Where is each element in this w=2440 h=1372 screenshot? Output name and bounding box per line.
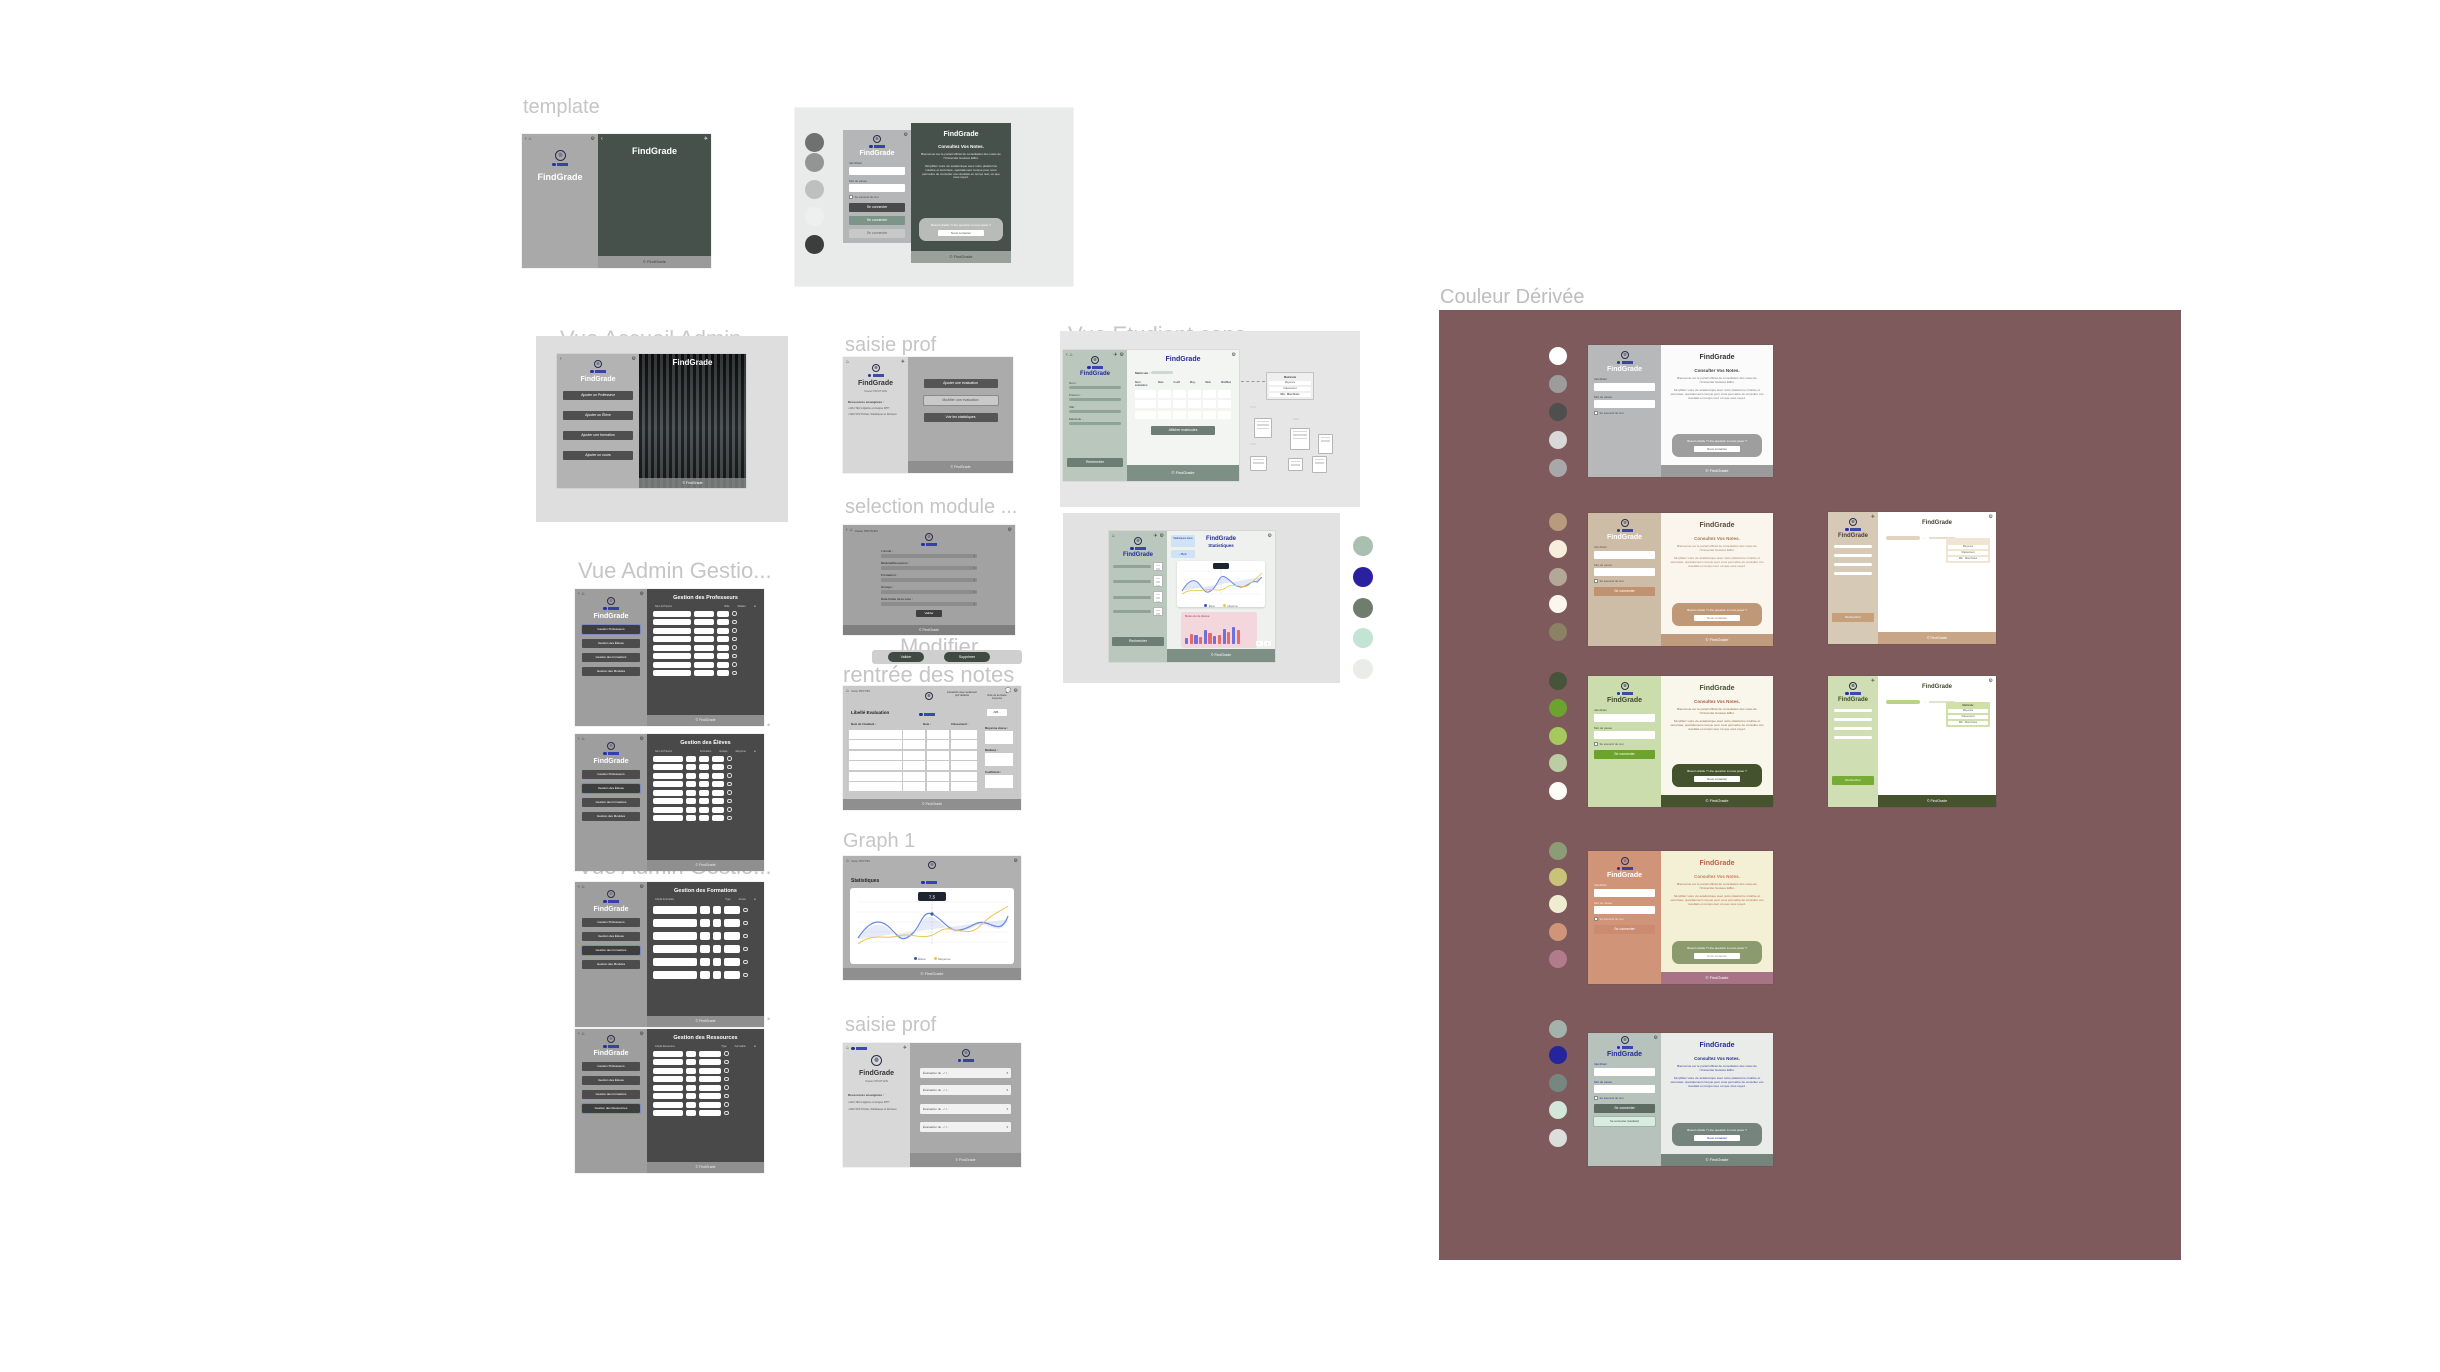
home-icon[interactable]: ⌂ — [846, 859, 849, 864]
matricule-input[interactable] — [1151, 371, 1173, 374]
home-icon[interactable]: ⌂ — [846, 360, 849, 365]
info-icon[interactable] — [727, 765, 732, 770]
share-icon[interactable]: ✈ — [1113, 353, 1117, 358]
color-swatch[interactable] — [1353, 628, 1373, 648]
color-swatch[interactable] — [805, 180, 824, 199]
valider-pill[interactable]: Valider — [888, 652, 924, 662]
info-icon[interactable] — [727, 756, 732, 761]
field-input[interactable] — [1069, 410, 1121, 413]
home-icon[interactable]: ⌂ — [582, 1032, 585, 1037]
identifiant-input[interactable] — [1594, 714, 1655, 722]
frame-etudiant-stat[interactable]: ⌂✈⚙ FindGrade Rechercher Statistiques él… — [1109, 531, 1275, 662]
info-icon[interactable] — [743, 921, 748, 926]
col-header: Année — [739, 898, 746, 901]
info-icon[interactable] — [743, 934, 748, 939]
identifiant-input[interactable] — [1594, 1068, 1655, 1076]
share-icon[interactable]: ✈ — [1871, 679, 1875, 684]
derivee-frame-beige-search[interactable]: ✈ FindGrade Rechercher ⚙ FindGrade → Moy… — [1828, 512, 1996, 644]
menu-gestion-professeurs[interactable]: Gestion Professeurs — [582, 918, 640, 927]
table-row[interactable] — [849, 740, 977, 749]
info-icon[interactable] — [724, 1077, 729, 1082]
add-icon[interactable]: ⊕ — [754, 750, 756, 753]
table-row[interactable] — [849, 761, 977, 770]
side-input[interactable] — [985, 775, 1013, 788]
home-icon[interactable]: ⌂ — [850, 528, 853, 533]
design-canvas: { "app": { "name": "FindGrade", "copyrig… — [0, 0, 2440, 1372]
identifiant-input[interactable] — [1594, 383, 1655, 391]
back-icon[interactable]: ‹ — [525, 137, 527, 142]
home-icon[interactable]: ⌂ — [1070, 353, 1073, 358]
back-chip[interactable]: ‹ Bob — [1171, 550, 1195, 558]
add-formation-button[interactable]: Ajouter une formation — [563, 431, 633, 440]
info-icon[interactable] — [727, 799, 732, 804]
frame-accueil-admin[interactable]: ‹⚙ FindGrade Ajouter un Professeur Ajout… — [557, 354, 746, 488]
frame-admin-eleves[interactable]: ‹⌂⚙ FindGrade Gestion Professeurs Gestio… — [575, 734, 764, 871]
table-row[interactable] — [653, 971, 758, 979]
canvas-label-saisie-prof-2[interactable]: saisie prof — [845, 1014, 936, 1037]
side-input[interactable] — [985, 753, 1013, 766]
back-icon[interactable]: ‹ — [560, 357, 562, 362]
color-swatch[interactable] — [1549, 895, 1567, 913]
login-button[interactable]: Se connecter — [1594, 925, 1655, 934]
gear-icon[interactable]: ⚙ — [1989, 679, 1993, 684]
color-swatch[interactable] — [1353, 567, 1373, 587]
back-icon[interactable]: ‹ — [601, 137, 603, 142]
info-icon[interactable] — [732, 671, 737, 676]
info-icon[interactable] — [724, 1094, 729, 1099]
color-swatch[interactable] — [805, 235, 824, 254]
color-swatch[interactable] — [1549, 727, 1567, 745]
view-stats-button[interactable]: Voir les statistiques — [924, 413, 998, 422]
info-row: Moyenne — [1269, 381, 1311, 386]
results-table — [1127, 390, 1239, 419]
share-icon[interactable]: ✈ — [1871, 515, 1875, 520]
menu-gestion-eleves[interactable]: Gestion des Élèves — [582, 784, 640, 793]
evaluation-select[interactable]: Évaluation du ../../..▾ — [920, 1122, 1011, 1132]
home-icon[interactable]: ⌂ — [1112, 534, 1115, 539]
login-button-dark[interactable]: Se connecter — [849, 203, 905, 212]
menu-gestion-formations[interactable]: Gestion des formations — [582, 653, 640, 662]
gear-icon[interactable]: ⚙ — [1014, 689, 1018, 694]
annotation: Note de la classe moyenne — [983, 694, 1011, 700]
color-swatch[interactable] — [1549, 568, 1567, 586]
frame-template-base[interactable]: ‹⌂⚙ FindGrade ‹✈ FindGrade © FindGrade — [522, 134, 711, 268]
login-button-light[interactable]: Se connecter — [849, 229, 905, 238]
color-swatch[interactable] — [1549, 1074, 1567, 1092]
color-swatch[interactable] — [1549, 950, 1567, 968]
canvas-label-saisie-prof-1[interactable]: saisie prof — [845, 334, 936, 357]
identifiant-label: Identifiant — [1594, 377, 1655, 381]
table-row[interactable] — [653, 670, 758, 676]
edit-evaluation-button[interactable]: Modifier une évaluation — [924, 396, 998, 405]
color-swatch[interactable] — [1549, 1129, 1567, 1147]
gear-icon[interactable]: ⚙ — [1014, 859, 1018, 864]
info-icon[interactable] — [727, 790, 732, 795]
search-button[interactable]: Rechercher — [1067, 458, 1123, 467]
share-icon[interactable]: ✈ — [704, 137, 708, 142]
frame-saisie-prof-actions[interactable]: ⌂✈ FindGrade Xavier PROTHIN Ressources e… — [843, 357, 1013, 473]
class-badge[interactable]: A|B... — [987, 709, 1007, 716]
info-icon[interactable] — [724, 1085, 729, 1090]
table-row[interactable] — [653, 1076, 758, 1082]
color-swatch[interactable] — [1549, 672, 1567, 690]
table-row[interactable] — [653, 807, 758, 813]
remember-checkbox[interactable]: Se souvenir de moi — [1594, 579, 1655, 583]
gear-icon[interactable]: ⚙ — [640, 885, 644, 890]
remember-checkbox[interactable]: Se souvenir de moi — [1594, 742, 1655, 746]
home-icon[interactable]: ⌂ — [846, 1046, 849, 1051]
frame-saisie-prof-select[interactable]: ⌂✈ FindGrade Xavier PROTHIN Ressources e… — [843, 1043, 1021, 1167]
canvas-label-admin-gestion-1[interactable]: Vue Admin Gestio... — [578, 558, 772, 584]
identifiant-input[interactable] — [1594, 889, 1655, 897]
color-swatch[interactable] — [1353, 536, 1373, 556]
next-page-button[interactable]: › — [1264, 641, 1271, 646]
info-icon[interactable] — [743, 947, 748, 952]
color-swatch[interactable] — [1549, 754, 1567, 772]
table-row[interactable] — [653, 611, 758, 617]
table-row[interactable] — [653, 781, 758, 787]
color-swatch[interactable] — [805, 133, 824, 152]
derivee-frame-gray[interactable]: FindGrade Identifiant Mot de passe Se so… — [1588, 345, 1773, 477]
search-button[interactable]: Rechercher — [1832, 776, 1874, 785]
menu-gestion-eleves[interactable]: Gestion des Élèves — [582, 932, 640, 941]
info-icon[interactable] — [732, 620, 737, 625]
info-icon[interactable] — [724, 1111, 729, 1116]
evaluation-select[interactable]: Évaluation du ../../..▾ — [920, 1104, 1011, 1114]
formations-rows — [647, 906, 764, 979]
gear-icon[interactable]: ⚙ — [1008, 528, 1012, 533]
color-swatch[interactable] — [1549, 375, 1567, 393]
add-evaluation-button[interactable]: Ajouter une évaluation — [924, 379, 998, 388]
table-row[interactable] — [849, 751, 977, 760]
add-icon[interactable]: ⊕ — [754, 898, 756, 901]
menu-gestion-formations[interactable]: Gestion des formations — [582, 946, 640, 955]
password-input[interactable] — [1594, 731, 1655, 739]
info-icon[interactable] — [732, 611, 737, 616]
contact-button[interactable]: Nous contacter — [1694, 776, 1740, 783]
menu-gestion-professeurs[interactable]: Gestion Professeurs — [582, 770, 640, 779]
frame-graph1[interactable]: ⌂Xavier PROTHIN⚙ Statistiques 7,5 Élève … — [843, 856, 1021, 980]
color-swatch[interactable] — [1353, 598, 1373, 618]
panel-title: FindGrade — [1661, 685, 1773, 692]
table-row[interactable] — [653, 1102, 758, 1108]
contact-button[interactable]: Nous contacter — [1694, 953, 1740, 960]
table-row[interactable] — [653, 798, 758, 804]
color-swatch[interactable] — [1549, 842, 1567, 860]
universite-gustave-eiffel-logo — [1588, 361, 1661, 365]
share-icon[interactable]: ✈ — [1153, 534, 1157, 539]
frame-admin-ressources[interactable]: ‹⌂⚙ FindGrade Gestion Professeurs Gestio… — [575, 1029, 764, 1173]
select-input[interactable]: ▾ — [881, 590, 977, 594]
info-icon[interactable] — [724, 1102, 729, 1107]
frame-etudiant-cons[interactable]: ‹⌂✈⚙ FindGrade Nom : Prénom : INE : Matr… — [1063, 350, 1239, 481]
info-icon[interactable] — [724, 1068, 729, 1073]
color-swatch[interactable] — [1549, 403, 1567, 421]
color-swatch[interactable] — [1549, 595, 1567, 613]
color-swatch[interactable] — [1353, 659, 1373, 679]
back-icon[interactable]: ‹ — [578, 737, 580, 742]
color-swatch[interactable] — [1549, 623, 1567, 641]
login-button[interactable]: Se connecter — [1594, 1104, 1655, 1113]
student-login-button[interactable]: Se connecter (étudiant) — [1594, 1117, 1655, 1126]
table-row[interactable] — [653, 764, 758, 770]
remember-checkbox[interactable]: Se souvenir de moi — [1594, 917, 1655, 921]
remember-checkbox[interactable]: Se souvenir de moi — [1594, 411, 1655, 415]
info-icon[interactable] — [724, 1060, 729, 1065]
select-input[interactable]: ▾ — [881, 578, 977, 582]
prev-page-button[interactable]: ‹ — [1256, 641, 1263, 646]
side-input[interactable] — [985, 731, 1013, 744]
search-button[interactable]: Rechercher — [1112, 637, 1164, 646]
field-input[interactable] — [1113, 610, 1151, 613]
color-swatch[interactable] — [1549, 1020, 1567, 1038]
table-row[interactable] — [653, 636, 758, 642]
field-input[interactable] — [1834, 736, 1872, 739]
field-input[interactable] — [1834, 727, 1872, 730]
table-row[interactable] — [849, 782, 977, 791]
color-swatch[interactable] — [1549, 459, 1567, 477]
supprimer-pill[interactable]: Supprimer — [944, 652, 990, 662]
info-icon[interactable] — [727, 782, 732, 787]
footer-bar: © FindGrade — [910, 1153, 1021, 1167]
info-icon[interactable] — [727, 816, 732, 821]
password-input[interactable] — [1594, 568, 1655, 576]
findgrade-logo — [1621, 682, 1629, 690]
info-icon[interactable] — [732, 654, 737, 659]
gear-icon[interactable]: ⚙ — [1989, 515, 1993, 520]
table-row[interactable] — [653, 1051, 758, 1057]
select-input[interactable]: ▾ — [881, 554, 977, 558]
table-row[interactable] — [653, 619, 758, 625]
table-row[interactable] — [653, 945, 758, 953]
field-input[interactable] — [1834, 572, 1872, 575]
color-swatch[interactable] — [805, 153, 824, 172]
table-row[interactable] — [653, 790, 758, 796]
field-input[interactable] — [1113, 580, 1151, 583]
frame-template-palette[interactable]: ⚙ FindGrade Identifiant Mot de passe Se … — [795, 108, 1073, 286]
remember-checkbox[interactable]: Se souvenir de moi — [849, 195, 905, 199]
findgrade-logo — [928, 861, 936, 869]
contact-button[interactable]: Nous contacter — [1694, 615, 1740, 622]
show-button[interactable]: Afficher matricules — [1151, 426, 1215, 435]
select-input[interactable]: ▾ — [881, 602, 977, 606]
field-input[interactable] — [1069, 386, 1121, 389]
info-icon[interactable] — [743, 960, 748, 965]
table-row[interactable] — [653, 653, 758, 659]
table-row[interactable] — [653, 1110, 758, 1116]
table-row[interactable] — [1135, 411, 1231, 419]
table-row[interactable] — [653, 645, 758, 651]
home-icon[interactable]: ⌂ — [582, 592, 585, 597]
derivee-frame-sage-login[interactable]: ⚙ FindGrade Identifiant Mot de passe Se … — [1588, 1033, 1773, 1166]
canvas-label-selection-module[interactable]: selection module ... — [845, 496, 1017, 519]
gear-icon[interactable]: ⚙ — [1120, 353, 1124, 358]
menu-gestion-modules[interactable]: Gestion des Modules — [582, 667, 640, 676]
password-input[interactable] — [1594, 400, 1655, 408]
field-input[interactable] — [1834, 709, 1872, 712]
info-icon[interactable] — [732, 645, 737, 650]
derivee-frame-green-login[interactable]: FindGrade Identifiant Mot de passe Se so… — [1588, 676, 1773, 807]
color-swatch[interactable] — [1549, 782, 1567, 800]
table-row[interactable] — [653, 1085, 758, 1091]
evaluation-select[interactable]: Évaluation du ../../..▾ — [920, 1068, 1011, 1078]
search-pill[interactable] — [1886, 536, 1920, 540]
add-professeur-button[interactable]: Ajouter un Professeur — [563, 391, 633, 400]
gear-icon[interactable]: ⚙ — [1654, 1036, 1658, 1041]
info-icon[interactable] — [724, 1051, 729, 1056]
table-row[interactable] — [653, 1093, 758, 1099]
info-icon[interactable] — [732, 637, 737, 642]
table-row[interactable] — [653, 906, 758, 914]
table-row[interactable] — [653, 756, 758, 762]
table-row[interactable] — [1135, 400, 1231, 408]
gear-icon[interactable]: ⚙ — [1268, 534, 1272, 539]
color-swatch[interactable] — [1549, 540, 1567, 558]
identifiant-label: Identifiant — [1594, 883, 1655, 887]
gear-icon[interactable]: ⚙ — [1232, 353, 1236, 358]
table-row[interactable] — [653, 773, 758, 779]
field-input[interactable] — [1113, 596, 1151, 599]
frame-selection-module[interactable]: ‹⌂Xavier PROTHIN⚙ L'école : ▾ Module/Res… — [843, 525, 1015, 635]
derivee-frame-salmon-login[interactable]: FindGrade Identifiant Mot de passe Se so… — [1588, 851, 1773, 984]
info-icon[interactable] — [732, 628, 737, 633]
password-input[interactable] — [1594, 1085, 1655, 1093]
add-icon[interactable]: ⊕ — [754, 1045, 756, 1048]
field-input[interactable] — [1834, 545, 1872, 548]
identifiant-input[interactable] — [849, 167, 905, 175]
color-swatch[interactable] — [1549, 699, 1567, 717]
derivee-frame-beige-login[interactable]: FindGrade Identifiant Mot de passe Se so… — [1588, 513, 1773, 646]
back-icon[interactable]: ‹ — [578, 885, 580, 890]
info-icon[interactable] — [743, 973, 748, 978]
derivee-frame-green-search[interactable]: ✈ FindGrade Rechercher ⚙ FindGrade → Mat… — [1828, 676, 1996, 807]
section-title: Gestion des Élèves — [647, 740, 764, 746]
canvas-label-graph1[interactable]: Graph 1 — [843, 830, 915, 853]
login-button[interactable]: Se connecter — [1594, 587, 1655, 596]
info-icon[interactable] — [727, 773, 732, 778]
table-row[interactable] — [653, 932, 758, 940]
share-icon[interactable]: ✈ — [901, 360, 905, 365]
table-row[interactable] — [653, 662, 758, 668]
table-row[interactable] — [653, 958, 758, 966]
table-row[interactable] — [849, 730, 977, 739]
evaluation-select[interactable]: Évaluation du ../../..▾ — [920, 1085, 1011, 1095]
password-input[interactable] — [849, 184, 905, 192]
search-pill[interactable] — [1886, 700, 1920, 704]
welcome-paragraph: Bienvenue sur le portail officiel de con… — [1670, 883, 1764, 891]
color-swatch[interactable] — [1549, 1101, 1567, 1119]
gear-icon[interactable]: ⚙ — [640, 592, 644, 597]
field-input[interactable] — [1834, 554, 1872, 557]
field-input[interactable] — [1834, 718, 1872, 721]
password-input[interactable] — [1594, 906, 1655, 914]
back-icon[interactable]: ‹ — [578, 592, 580, 597]
table-row[interactable] — [653, 628, 758, 634]
menu-gestion-formations[interactable]: Gestion des formations — [582, 1090, 640, 1099]
table-row[interactable] — [653, 919, 758, 927]
frame-rentree-notes[interactable]: ⌂Xavier PROTHIN💬⚙ interaction avec seule… — [843, 686, 1021, 810]
login-button-sage[interactable]: Se connecter — [849, 216, 905, 225]
table-row[interactable] — [653, 815, 758, 821]
search-button[interactable]: Rechercher — [1832, 613, 1874, 622]
login-button[interactable]: Se connecter — [1594, 750, 1655, 759]
color-swatch[interactable] — [1549, 868, 1567, 886]
table-row[interactable] — [653, 1068, 758, 1074]
add-cours-button[interactable]: Ajouter un cours — [563, 451, 633, 460]
menu-gestion-professeurs[interactable]: Gestion Professeurs — [582, 625, 640, 634]
select-input[interactable]: ▾ — [881, 566, 977, 570]
home-icon[interactable]: ⌂ — [582, 885, 585, 890]
identifiant-input[interactable] — [1594, 551, 1655, 559]
table-row[interactable] — [1135, 390, 1231, 398]
resource-item: MA1 TEC1 Algèbre et Analyse MTH — [850, 1101, 890, 1104]
gear-icon[interactable]: ⚙ — [640, 737, 644, 742]
frame-admin-formations[interactable]: ‹⌂⚙ FindGrade Gestion Professeurs Gestio… — [575, 882, 764, 1027]
canvas-label-template[interactable]: template — [523, 96, 600, 119]
field-input[interactable] — [1069, 398, 1121, 401]
table-row[interactable] — [849, 772, 977, 781]
valider-button[interactable]: Valider — [916, 610, 942, 617]
home-icon[interactable]: ⌂ — [846, 689, 849, 694]
back-icon[interactable]: ‹ — [578, 1032, 580, 1037]
info-title: Matricule — [1948, 704, 1988, 707]
canvas-label-couleur-derivee[interactable]: Couleur Dérivée — [1440, 286, 1585, 309]
table-row[interactable] — [653, 1059, 758, 1065]
remember-checkbox[interactable]: Se souvenir de moi — [1594, 1096, 1655, 1100]
color-swatch[interactable] — [1549, 513, 1567, 531]
back-icon[interactable]: ‹ — [1066, 353, 1068, 358]
home-icon[interactable]: ⌂ — [582, 737, 585, 742]
field-input[interactable] — [1834, 563, 1872, 566]
color-swatch[interactable] — [1549, 1046, 1567, 1064]
add-eleve-button[interactable]: Ajouter un Élève — [563, 411, 633, 420]
color-swatch[interactable] — [1549, 431, 1567, 449]
gear-icon[interactable]: ⚙ — [1160, 534, 1164, 539]
couleur-derivee-board[interactable]: FindGrade Identifiant Mot de passe Se so… — [1439, 310, 2181, 1260]
field-input[interactable] — [1069, 422, 1121, 425]
info-icon[interactable] — [727, 807, 732, 812]
field-input[interactable] — [1113, 565, 1151, 568]
menu-gestion-modules[interactable]: Gestion des Modules — [582, 812, 640, 821]
home-icon[interactable]: ⌂ — [529, 137, 532, 142]
menu-gestion-modules[interactable]: Gestion des Modules — [582, 960, 640, 969]
color-swatch[interactable] — [805, 207, 824, 226]
contact-button[interactable]: Nous contacter — [1694, 1135, 1740, 1142]
menu-gestion-ressources[interactable]: Gestion des Ressources — [582, 1104, 640, 1113]
gear-icon[interactable]: ⚙ — [591, 137, 595, 142]
canvas-label-rentree-notes[interactable]: rentrée des notes — [843, 662, 1014, 688]
contact-button[interactable]: Nous contacter — [1694, 446, 1740, 453]
color-swatch[interactable] — [1549, 347, 1567, 365]
gear-icon[interactable]: ⚙ — [632, 357, 636, 362]
info-icon[interactable] — [743, 908, 748, 913]
menu-gestion-professeurs[interactable]: Gestion Professeurs — [582, 1062, 640, 1071]
info-icon[interactable] — [732, 662, 737, 667]
share-icon[interactable]: ✈ — [903, 1046, 907, 1051]
color-swatch[interactable] — [1549, 923, 1567, 941]
menu-gestion-formations[interactable]: Gestion des formations — [582, 798, 640, 807]
frame-admin-professeurs[interactable]: ‹⌂⚙ FindGrade Gestion Professeurs Gestio… — [575, 589, 764, 726]
gear-icon[interactable]: ⚙ — [640, 1032, 644, 1037]
menu-gestion-eleves[interactable]: Gestion des Élèves — [582, 1076, 640, 1085]
app-title: FindGrade — [1588, 697, 1661, 704]
gear-icon[interactable]: ⚙ — [904, 133, 908, 138]
menu-gestion-eleves[interactable]: Gestion des Élèves — [582, 639, 640, 648]
flow-dots: ⋯ — [1293, 416, 1300, 423]
contact-button[interactable]: Nous contacter — [938, 230, 984, 237]
back-icon[interactable]: ‹ — [846, 528, 848, 533]
add-icon[interactable]: ⊕ — [754, 605, 756, 608]
